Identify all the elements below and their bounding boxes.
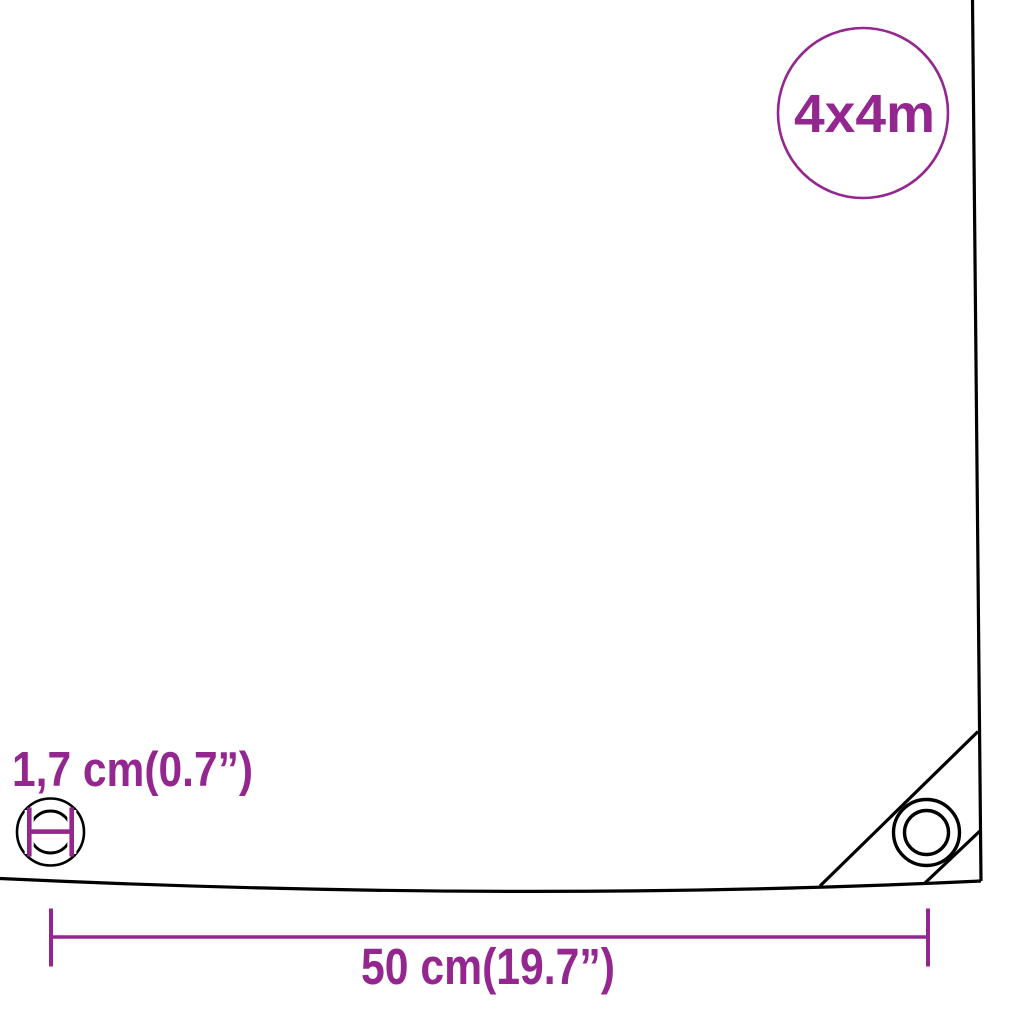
svg-text:50 cm(19.7”): 50 cm(19.7”) (361, 938, 615, 995)
svg-text:4x4m: 4x4m (794, 84, 935, 144)
svg-text:1,7 cm(0.7”): 1,7 cm(0.7”) (12, 743, 253, 797)
